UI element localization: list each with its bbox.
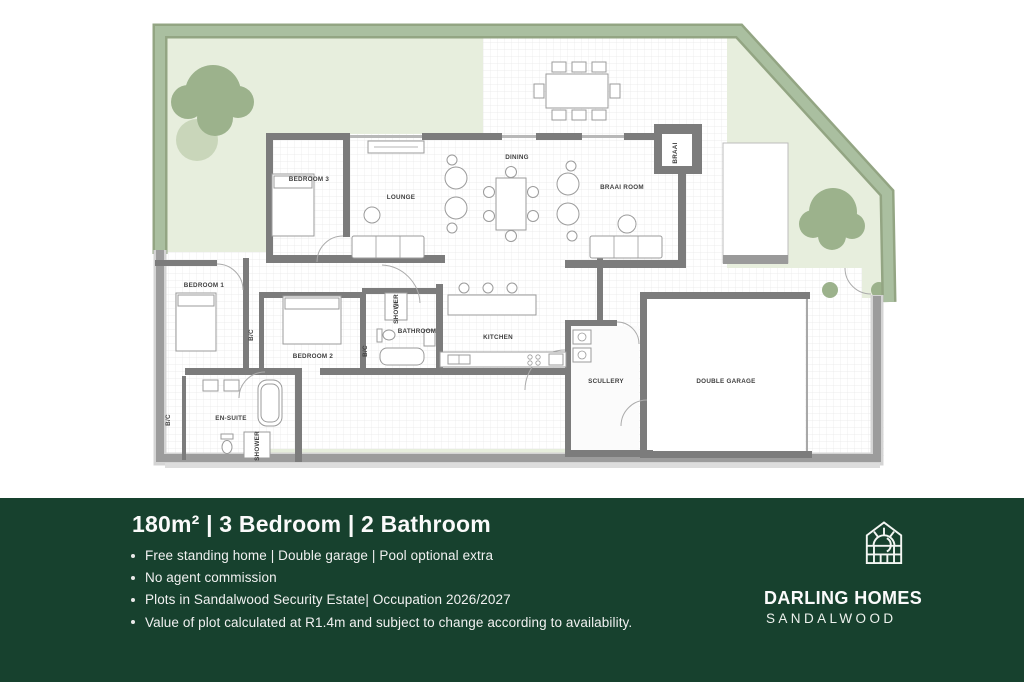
room-label-garage: DOUBLE GARAGE <box>696 378 755 385</box>
list-item: Free standing home | Double garage | Poo… <box>131 548 632 563</box>
list-item: Value of plot calculated at R1.4m and su… <box>131 615 632 630</box>
bullet-dot <box>131 576 135 580</box>
feature-text: Value of plot calculated at R1.4m and su… <box>145 615 632 630</box>
room-label-shower: SHOWER <box>254 431 261 461</box>
bed-icon <box>283 296 341 344</box>
room-label-bc: B/C <box>248 329 255 341</box>
pool <box>723 143 788 264</box>
room-label-bc: B/C <box>362 345 369 357</box>
bullet-dot <box>131 620 135 624</box>
brand-subtitle: SANDALWOOD <box>766 611 897 626</box>
room-label-bedroom3: BEDROOM 3 <box>289 176 330 183</box>
info-banner: 180m² | 3 Bedroom | 2 Bathroom Free stan… <box>0 498 1024 682</box>
page-title: 180m² | 3 Bedroom | 2 Bathroom <box>132 511 491 538</box>
room-label-shower: SHOWER <box>393 294 400 324</box>
property-flyer: BEDROOM 3 LOUNGE DINING BRAAI ROOM BRAAI… <box>0 0 1024 682</box>
bed-icon <box>272 174 314 236</box>
bush-icon <box>822 282 838 298</box>
list-item: No agent commission <box>131 570 632 585</box>
bullet-dot <box>131 554 135 558</box>
feature-text: Plots in Sandalwood Security Estate| Occ… <box>145 592 511 607</box>
list-item: Plots in Sandalwood Security Estate| Occ… <box>131 592 632 607</box>
room-label-scullery: SCULLERY <box>588 378 624 385</box>
room-label-lounge: LOUNGE <box>387 194 415 201</box>
brand-name: DARLING HOMES <box>764 588 922 609</box>
feature-list: Free standing home | Double garage | Poo… <box>131 548 632 637</box>
darling-homes-logo-icon <box>863 519 905 566</box>
feature-text: Free standing home | Double garage | Poo… <box>145 548 493 563</box>
room-label-bathroom: BATHROOM <box>398 328 437 335</box>
room-label-braai: BRAAI <box>672 142 679 163</box>
feature-text: No agent commission <box>145 570 277 585</box>
room-label-kitchen: KITCHEN <box>483 334 513 341</box>
room-label-braai-room: BRAAI ROOM <box>600 184 644 191</box>
room-label-bc: B/C <box>165 414 172 426</box>
room-label-bedroom2: BEDROOM 2 <box>293 353 334 360</box>
floor-plan: BEDROOM 3 LOUNGE DINING BRAAI ROOM BRAAI… <box>0 0 1024 498</box>
room-label-ensuite: EN-SUITE <box>215 415 246 422</box>
bullet-dot <box>131 598 135 602</box>
room-label-bedroom1: BEDROOM 1 <box>184 282 225 289</box>
bed-icon <box>176 293 216 351</box>
room-label-dining: DINING <box>505 154 529 161</box>
